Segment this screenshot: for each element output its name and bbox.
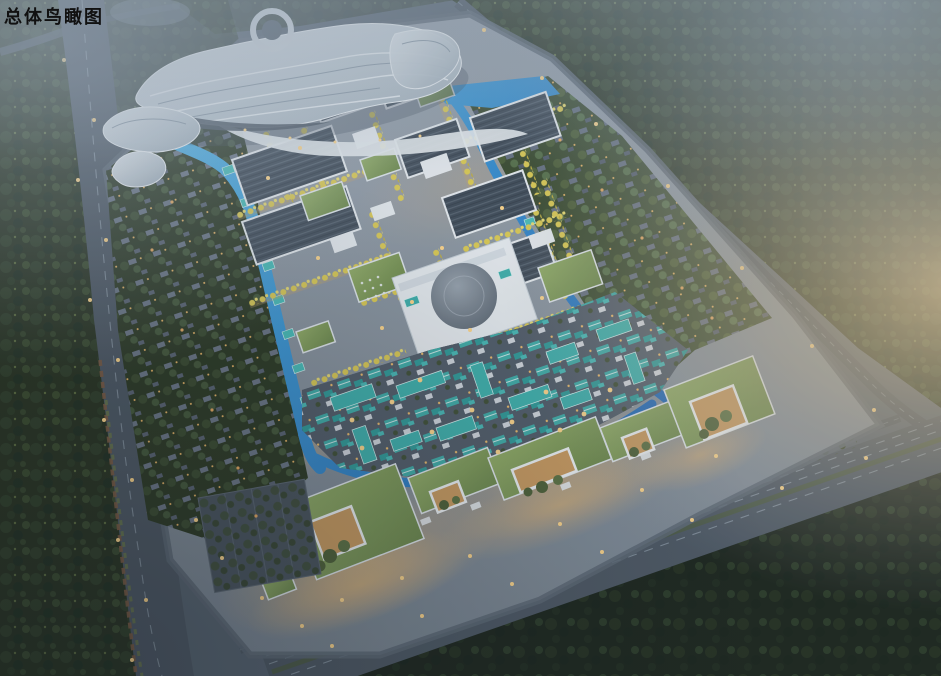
screenshot-root: 总体鸟瞰图 [0, 0, 941, 676]
haze-overlay [0, 0, 941, 676]
page-title: 总体鸟瞰图 [4, 3, 104, 29]
aerial-rendering [0, 0, 941, 676]
